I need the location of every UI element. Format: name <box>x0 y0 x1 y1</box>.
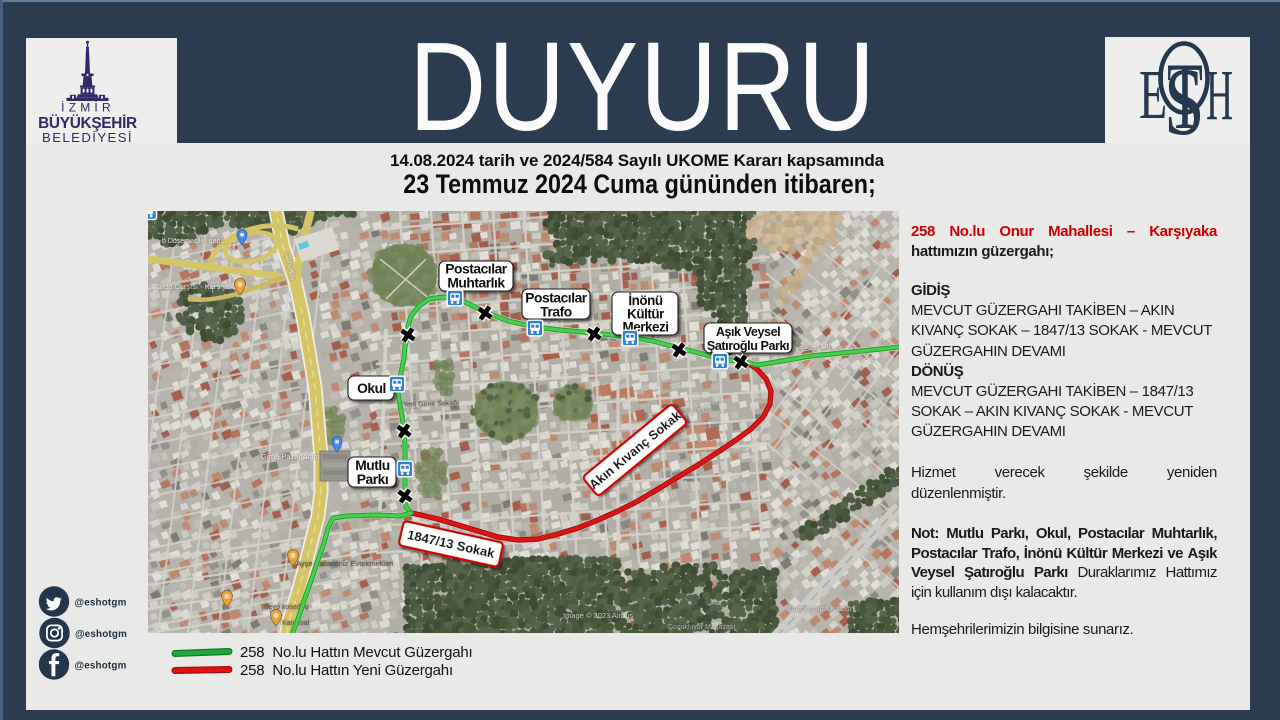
svg-text:Dadaş Gıda Kasap: Dadaş Gıda Kasap <box>788 604 851 613</box>
svg-text:Ayşe Karadeniz Evtekmekleri: Ayşe Karadeniz Evtekmekleri <box>296 559 394 568</box>
svg-text:BELEDİYESİ: BELEDİYESİ <box>42 130 133 144</box>
svg-text:Parkı: Parkı <box>357 472 389 487</box>
svg-text:@eshotgm: @eshotgm <box>75 598 127 609</box>
svg-text:H: H <box>1206 56 1233 135</box>
svg-text:T: T <box>1167 45 1203 143</box>
svg-text:İZMİR: İZMİR <box>61 101 115 115</box>
svg-text:@eshotgm: @eshotgm <box>75 629 127 640</box>
svg-text:b Döşemeciler dep...: b Döşemeciler dep... <box>162 238 226 245</box>
svg-text:Aşık Veysel: Aşık Veysel <box>716 325 780 339</box>
svg-text:Postacılar: Postacılar <box>525 291 588 306</box>
svg-text:Şatıroğlu Parkı: Şatıroğlu Parkı <box>707 339 789 353</box>
svg-text:Image © 2023 Airbus: Image © 2023 Airbus <box>563 611 633 620</box>
svg-text:Gıda Çarşısı - Karşıyaka: Gıda Çarşısı - Karşıyaka <box>156 282 239 291</box>
svg-text:Mutlu: Mutlu <box>355 458 390 473</box>
svg-text:Trafo: Trafo <box>540 304 572 319</box>
svg-text:Girne Pazar Alanı: Girne Pazar Alanı <box>261 452 320 461</box>
svg-text:Çocukluyor Mağazası: Çocukluyor Mağazası <box>668 624 735 631</box>
svg-text:Postacılar: Postacılar <box>445 262 508 277</box>
svg-text:Okul: Okul <box>357 381 386 396</box>
svg-text:E: E <box>1139 55 1167 133</box>
svg-text:@eshotgm: @eshotgm <box>75 661 127 672</box>
svg-text:Muhtarlık: Muhtarlık <box>447 275 505 290</box>
